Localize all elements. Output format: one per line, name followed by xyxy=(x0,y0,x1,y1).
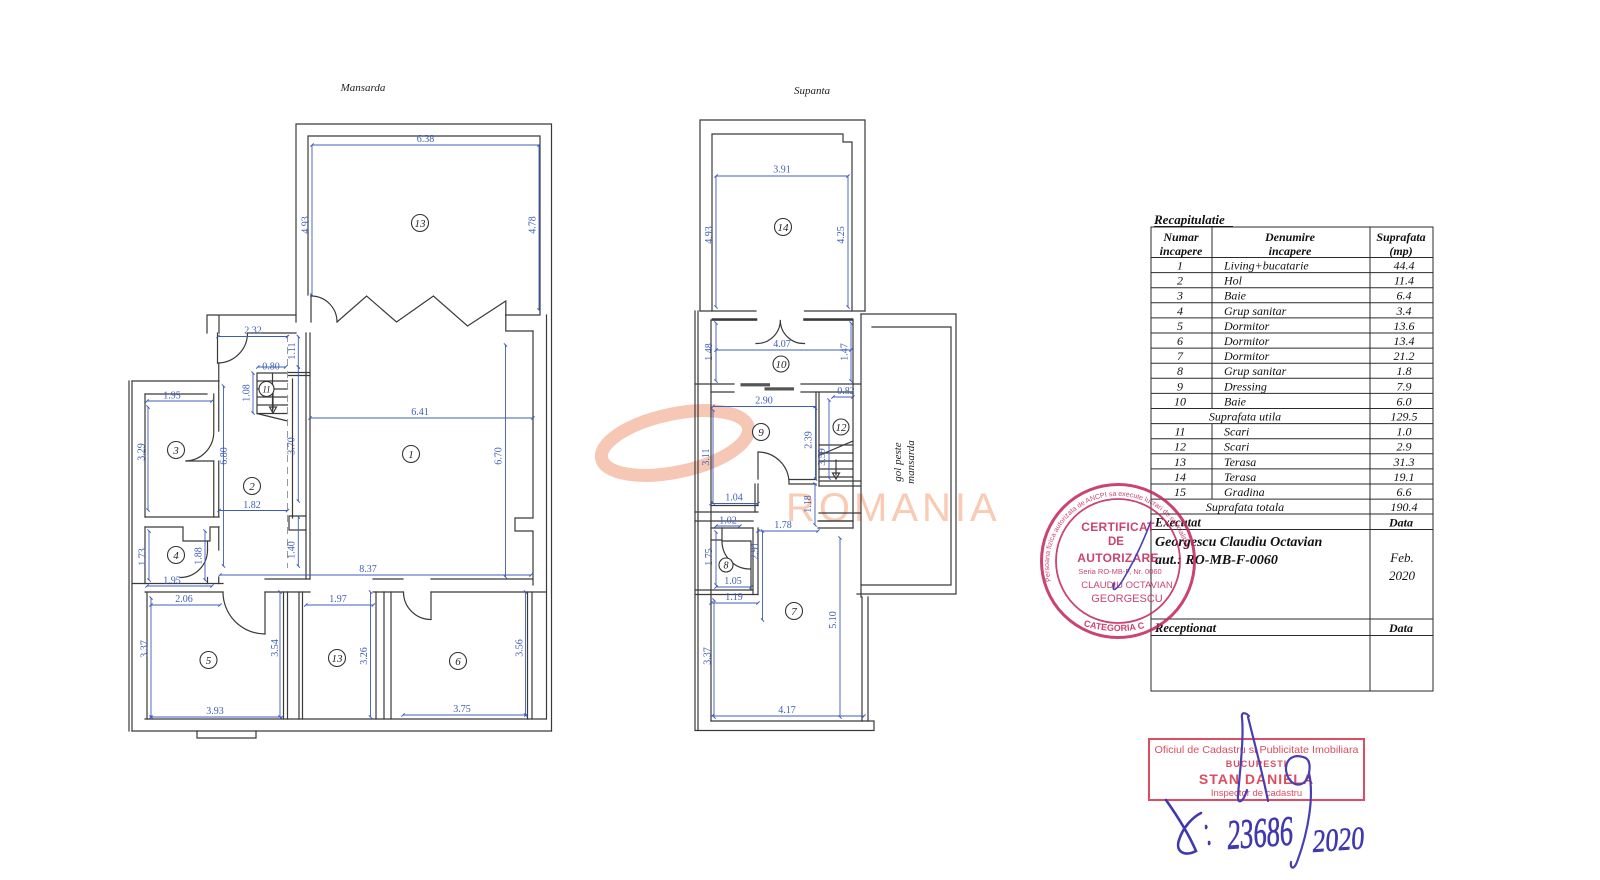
svg-text:12: 12 xyxy=(1174,440,1186,454)
svg-text:Dressing: Dressing xyxy=(1223,379,1267,393)
svg-text:3.56: 3.56 xyxy=(515,639,526,657)
svg-text:13: 13 xyxy=(415,218,427,230)
svg-text:21.2: 21.2 xyxy=(1394,349,1415,363)
svg-text:3.93: 3.93 xyxy=(206,706,224,717)
svg-text:1: 1 xyxy=(1177,259,1183,273)
svg-text:Suprafata: Suprafata xyxy=(1376,230,1425,244)
svg-text:Gradina: Gradina xyxy=(1224,485,1265,499)
svg-text:1.05: 1.05 xyxy=(724,576,742,587)
svg-text:5.10: 5.10 xyxy=(828,611,839,629)
svg-text:1.19: 1.19 xyxy=(725,592,743,603)
svg-text:1.8: 1.8 xyxy=(1397,364,1412,378)
svg-text:23686: 23686 xyxy=(1225,808,1294,858)
svg-text:1.47: 1.47 xyxy=(840,343,851,361)
svg-text:5: 5 xyxy=(1177,319,1183,333)
svg-text:7.9: 7.9 xyxy=(1397,379,1412,393)
svg-text:2020: 2020 xyxy=(1389,568,1416,583)
svg-text:Supanta: Supanta xyxy=(794,85,831,97)
svg-text:Denumire: Denumire xyxy=(1264,230,1316,244)
svg-text:1.02: 1.02 xyxy=(719,516,737,527)
svg-text:Feb.: Feb. xyxy=(1389,550,1413,565)
svg-text:3.70: 3.70 xyxy=(287,437,298,455)
svg-text:8.37: 8.37 xyxy=(359,564,377,575)
svg-text:1.11: 1.11 xyxy=(287,342,298,359)
svg-text:1.95: 1.95 xyxy=(163,576,181,587)
svg-text:15: 15 xyxy=(1174,485,1186,499)
svg-text:BUCURESTI: BUCURESTI xyxy=(1226,759,1288,769)
svg-text:1.78: 1.78 xyxy=(774,520,792,531)
svg-text:4.17: 4.17 xyxy=(778,705,796,716)
svg-text:10: 10 xyxy=(776,359,788,371)
svg-text:1.88: 1.88 xyxy=(194,547,205,565)
svg-text:mansarda: mansarda xyxy=(905,440,917,484)
svg-text:Living+bucatarie: Living+bucatarie xyxy=(1223,259,1309,273)
svg-text:CLAUDIU OCTAVIAN: CLAUDIU OCTAVIAN xyxy=(1081,580,1173,591)
svg-text:3.37: 3.37 xyxy=(703,647,714,665)
svg-text:1.40: 1.40 xyxy=(287,541,298,559)
svg-text:ROMANIA: ROMANIA xyxy=(786,486,1001,530)
svg-text:129.5: 129.5 xyxy=(1391,410,1418,424)
svg-text:Baie: Baie xyxy=(1224,394,1247,408)
svg-text:6.41: 6.41 xyxy=(411,407,429,418)
svg-text:Grup sanitar: Grup sanitar xyxy=(1224,304,1287,318)
svg-text:4.25: 4.25 xyxy=(836,226,847,244)
svg-text:Hol: Hol xyxy=(1223,274,1243,288)
svg-text:9: 9 xyxy=(1177,379,1183,393)
svg-text:3.11: 3.11 xyxy=(701,448,712,465)
svg-text:4.93: 4.93 xyxy=(301,216,312,234)
svg-text:Recapitulatie: Recapitulatie xyxy=(1153,212,1225,227)
svg-text:GEORGESCU: GEORGESCU xyxy=(1091,593,1163,605)
svg-text:1.95: 1.95 xyxy=(163,391,181,402)
svg-text:1.04: 1.04 xyxy=(725,493,743,504)
svg-text:3.59: 3.59 xyxy=(817,448,828,466)
svg-text:incapere: incapere xyxy=(1160,244,1203,258)
svg-text:5: 5 xyxy=(206,655,212,667)
svg-text:1.82: 1.82 xyxy=(243,500,261,511)
svg-text:Seria RO-MB-F, Nr. 0060: Seria RO-MB-F, Nr. 0060 xyxy=(1078,567,1161,576)
svg-text:1.73: 1.73 xyxy=(138,548,149,566)
svg-text:2.9: 2.9 xyxy=(1397,440,1412,454)
svg-text:14: 14 xyxy=(1174,470,1186,484)
svg-text:AUTORIZARE: AUTORIZARE xyxy=(1077,551,1158,565)
svg-text:CERTIFICAT: CERTIFICAT xyxy=(1081,520,1155,534)
svg-text:1.08: 1.08 xyxy=(242,384,253,402)
svg-text:2.91: 2.91 xyxy=(750,542,761,560)
svg-text:Scari: Scari xyxy=(1224,440,1249,454)
svg-text:190.4: 190.4 xyxy=(1391,500,1418,514)
svg-text:1: 1 xyxy=(408,449,414,461)
svg-text:1.75: 1.75 xyxy=(704,548,715,566)
svg-text:11: 11 xyxy=(262,385,270,395)
svg-text:gol peste: gol peste xyxy=(892,442,904,482)
svg-text:Data: Data xyxy=(1388,516,1413,530)
svg-text:Suprafata utila: Suprafata utila xyxy=(1209,410,1281,424)
svg-text:aut.: RO-MB-F-0060: aut.: RO-MB-F-0060 xyxy=(1155,553,1278,568)
svg-text:13.6: 13.6 xyxy=(1394,319,1415,333)
svg-text:6.0: 6.0 xyxy=(1397,394,1412,408)
svg-text:12: 12 xyxy=(836,422,848,434)
svg-text:6: 6 xyxy=(1177,334,1183,348)
svg-text:3.54: 3.54 xyxy=(270,639,281,657)
svg-text:Dormitor: Dormitor xyxy=(1223,334,1270,348)
svg-text:6: 6 xyxy=(455,656,461,668)
svg-text:4.93: 4.93 xyxy=(704,226,715,244)
svg-text:incapere: incapere xyxy=(1269,244,1312,258)
svg-text:2: 2 xyxy=(1177,274,1183,288)
svg-text:8: 8 xyxy=(724,561,729,572)
svg-text:6.6: 6.6 xyxy=(1397,485,1412,499)
svg-text:1.18: 1.18 xyxy=(803,495,814,513)
svg-text:44.4: 44.4 xyxy=(1394,259,1415,273)
svg-text:31.3: 31.3 xyxy=(1393,455,1415,469)
svg-text:Scari: Scari xyxy=(1224,425,1249,439)
svg-text:6.70: 6.70 xyxy=(494,447,505,465)
svg-text:0.80: 0.80 xyxy=(262,362,280,373)
svg-text:Grup sanitar: Grup sanitar xyxy=(1224,364,1287,378)
svg-text:Dormitor: Dormitor xyxy=(1223,349,1270,363)
svg-text:Mansarda: Mansarda xyxy=(340,82,386,94)
svg-text:Inspector de cadastru: Inspector de cadastru xyxy=(1211,788,1302,799)
svg-text:13: 13 xyxy=(1174,455,1186,469)
svg-text:8: 8 xyxy=(1177,364,1183,378)
svg-text:4.07: 4.07 xyxy=(773,339,791,350)
svg-text:3.37: 3.37 xyxy=(140,640,151,658)
svg-text:11: 11 xyxy=(1174,425,1185,439)
svg-text:3.91: 3.91 xyxy=(773,165,791,176)
svg-text:19.1: 19.1 xyxy=(1394,470,1415,484)
svg-text:3.4: 3.4 xyxy=(1396,304,1412,318)
svg-text:Terasa: Terasa xyxy=(1224,455,1256,469)
svg-text:3: 3 xyxy=(172,445,179,457)
svg-text:3.75: 3.75 xyxy=(453,704,471,715)
svg-text:2: 2 xyxy=(249,481,255,493)
svg-text:DE: DE xyxy=(1108,536,1124,548)
svg-text:2.32: 2.32 xyxy=(244,326,262,337)
svg-text:2.39: 2.39 xyxy=(804,431,815,449)
svg-text:1.97: 1.97 xyxy=(329,594,347,605)
svg-text:Dormitor: Dormitor xyxy=(1223,319,1270,333)
svg-text:3.29: 3.29 xyxy=(137,443,148,461)
svg-text:2.90: 2.90 xyxy=(755,396,773,407)
svg-text:Suprafata totala: Suprafata totala xyxy=(1206,500,1284,514)
svg-text:9: 9 xyxy=(758,427,764,439)
svg-text:14: 14 xyxy=(778,222,790,234)
svg-text:1.48: 1.48 xyxy=(704,343,715,361)
svg-text:1.0: 1.0 xyxy=(1397,425,1412,439)
svg-text:6.38: 6.38 xyxy=(417,134,435,145)
svg-text:4: 4 xyxy=(173,550,179,562)
svg-text:0.82: 0.82 xyxy=(837,386,855,397)
svg-text:4.78: 4.78 xyxy=(528,216,539,234)
svg-text:(mp): (mp) xyxy=(1389,244,1412,258)
svg-text:7: 7 xyxy=(1177,349,1184,363)
svg-text:Numar: Numar xyxy=(1162,230,1199,244)
svg-text:13: 13 xyxy=(332,653,344,665)
svg-text:Data: Data xyxy=(1388,621,1413,635)
svg-text:4: 4 xyxy=(1177,304,1183,318)
svg-text:11.4: 11.4 xyxy=(1394,274,1414,288)
svg-text:Baie: Baie xyxy=(1224,289,1247,303)
svg-text:3: 3 xyxy=(1176,289,1183,303)
svg-text:Terasa: Terasa xyxy=(1224,470,1256,484)
svg-text:7: 7 xyxy=(791,606,797,618)
svg-text:3.26: 3.26 xyxy=(359,647,370,665)
svg-text:6.80: 6.80 xyxy=(219,447,230,465)
svg-text:13.4: 13.4 xyxy=(1394,334,1415,348)
svg-text:2.06: 2.06 xyxy=(175,594,193,605)
svg-text:10: 10 xyxy=(1174,394,1186,408)
svg-text:6.4: 6.4 xyxy=(1397,289,1412,303)
svg-text:2020: 2020 xyxy=(1311,819,1365,859)
